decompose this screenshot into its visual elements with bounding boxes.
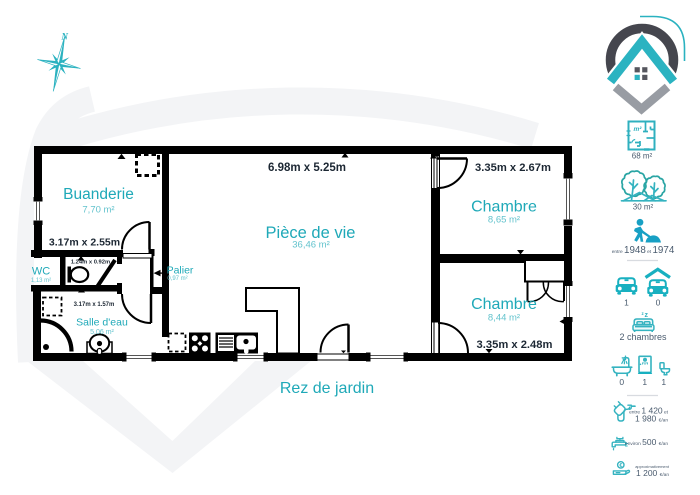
svg-text:Salle d'eau: Salle d'eau: [76, 317, 128, 329]
svg-text:3.35m x 2.48m: 3.35m x 2.48m: [477, 339, 553, 351]
svg-text:1: 1: [624, 298, 629, 308]
svg-text:36,46 m²: 36,46 m²: [292, 240, 330, 251]
svg-text:7,70 m²: 7,70 m²: [82, 205, 114, 216]
svg-text:3.17m x 1.57m: 3.17m x 1.57m: [74, 302, 115, 308]
svg-text:1: 1: [642, 377, 647, 387]
svg-text:Chambre: Chambre: [471, 199, 537, 216]
svg-text:6.98m x 5.25m: 6.98m x 5.25m: [268, 162, 346, 174]
svg-text:Palier: Palier: [167, 265, 194, 277]
svg-text:1.24m x 0.92m: 1.24m x 0.92m: [71, 260, 110, 266]
svg-text:€: €: [619, 463, 622, 469]
svg-text:Buanderie: Buanderie: [63, 186, 134, 203]
svg-text:1,13 m²: 1,13 m²: [31, 278, 51, 284]
svg-text:m²: m²: [634, 126, 643, 133]
svg-text:0,97 m²: 0,97 m²: [167, 276, 187, 282]
svg-text:Chambre: Chambre: [471, 296, 537, 313]
svg-text:0: 0: [656, 298, 661, 308]
svg-text:2 chambres: 2 chambres: [619, 332, 667, 342]
svg-text:WC: WC: [32, 266, 50, 278]
svg-text:30 m²: 30 m²: [633, 203, 654, 212]
svg-text:8,44 m²: 8,44 m²: [488, 313, 520, 324]
svg-text:1: 1: [661, 377, 666, 387]
svg-text:3.17m x 2.55m: 3.17m x 2.55m: [49, 237, 120, 249]
svg-text:3.35m x 2.67m: 3.35m x 2.67m: [475, 162, 551, 174]
svg-text:N: N: [61, 32, 69, 42]
svg-text:Rez de jardin: Rez de jardin: [280, 380, 374, 397]
svg-text:0: 0: [619, 377, 624, 387]
svg-text:z: z: [645, 312, 649, 319]
svg-text:5,06 m²: 5,06 m²: [90, 329, 114, 336]
svg-text:8,65 m²: 8,65 m²: [488, 215, 520, 226]
svg-text:68 m²: 68 m²: [632, 152, 653, 161]
